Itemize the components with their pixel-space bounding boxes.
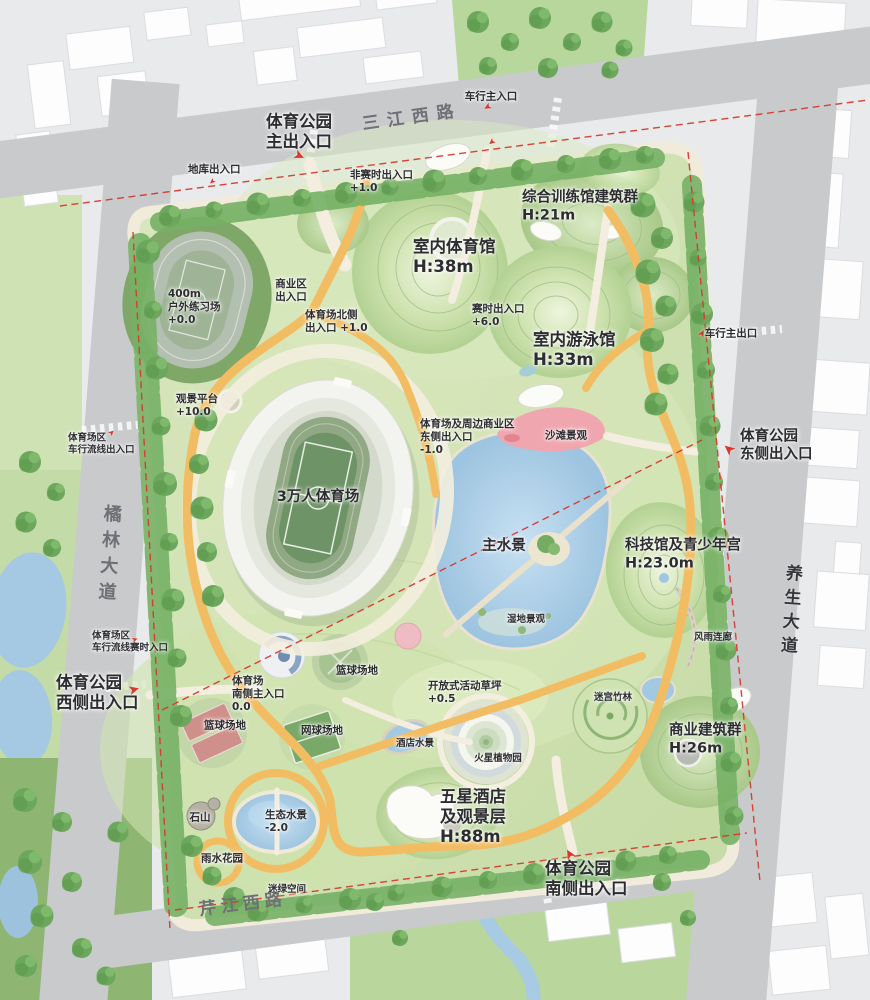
entrance-arrow-icon: ➤ — [127, 682, 142, 699]
map-label: 体育公园 主出入口 — [266, 112, 332, 152]
map-label: 体育场区 车行流线出入口 — [68, 432, 135, 455]
map-label: 商业建筑群 H:26m — [669, 722, 742, 757]
map-label: 体育公园 西侧出入口 — [56, 673, 139, 713]
map-label: 芹江西路 — [198, 889, 288, 920]
map-label: 酒店水景 — [396, 738, 434, 750]
entrance-arrow-icon: ➤ — [107, 428, 117, 438]
map-label: 三江西路 — [361, 101, 463, 135]
map-label: 迷宫竹林 — [594, 692, 632, 704]
map-label: 篮球场地 — [336, 665, 378, 678]
label-layer: 车行主入口体育公园 主出入口三江西路地库出入口非赛时出入口 +1.0综合训练馆建… — [0, 0, 870, 1000]
map-label: 体育场区 车行流线赛时入口 — [92, 630, 168, 653]
map-label: 风雨连廊 — [694, 632, 732, 644]
entrance-arrow-icon: ➤ — [130, 635, 139, 645]
map-label: 室内游泳馆 H:33m — [533, 330, 616, 370]
map-label: 体育场北侧 出入口 +1.0 — [305, 309, 368, 335]
map-label: 生态水景 -2.0 — [265, 809, 307, 835]
map-label: 体育场 南侧主入口 0.0 — [232, 675, 285, 713]
map-label: 观景平台 +10.0 — [176, 393, 218, 419]
entrance-arrow-icon: ➤ — [697, 328, 710, 340]
entrance-arrow-icon: ➤ — [481, 100, 493, 113]
entrance-arrow-icon: ➤ — [561, 845, 579, 862]
map-label: 主水景 — [482, 538, 526, 556]
map-label: 400m 户外练习场 +0.0 — [168, 288, 221, 326]
map-label: 迷绿空间 — [268, 884, 306, 896]
entrance-arrow-icon: ➤ — [719, 439, 738, 459]
map-label: 石山 — [190, 812, 211, 825]
map-label: 开放式活动草坪 +0.5 — [428, 680, 502, 706]
map-label: 体育公园 东侧出入口 — [740, 428, 813, 463]
entrance-arrow-icon: ➤ — [291, 147, 308, 165]
map-label: 沙滩景观 — [545, 430, 587, 443]
map-label: 赛时出入口 +6.0 — [472, 303, 525, 329]
map-label: 商业区 出入口 — [275, 278, 307, 304]
map-label: 综合训练馆建筑群 H:21m — [522, 189, 638, 224]
map-label: 雨水花园 — [201, 853, 243, 866]
map-label: 体育公园 南侧出入口 — [545, 859, 628, 899]
entrance-arrow-icon: ➤ — [485, 135, 497, 147]
map-label: 网球场地 — [301, 725, 343, 738]
map-label: 车行主入口 — [465, 91, 518, 104]
map-label: 室内体育馆 H:38m — [413, 237, 496, 277]
map-label: 五星酒店 及观景层 H:88m — [440, 787, 506, 847]
site-plan: 车行主入口体育公园 主出入口三江西路地库出入口非赛时出入口 +1.0综合训练馆建… — [0, 0, 870, 1000]
entrance-arrow-icon: ➤ — [207, 176, 217, 186]
map-label: 非赛时出入口 +1.0 — [350, 169, 413, 195]
map-label: 地库出入口 — [188, 164, 241, 177]
map-label: 湿地景观 — [507, 614, 545, 626]
map-label: 橘林大道 — [93, 503, 122, 608]
map-label: 火星植物园 — [474, 753, 522, 765]
map-label: 篮球场地 — [204, 720, 246, 733]
map-label: 3万人体育场 — [277, 489, 360, 507]
map-label: 车行主出口 — [705, 328, 758, 341]
map-label: 体育场及周边商业区 东侧出入口 -1.0 — [420, 418, 515, 456]
map-label: 养生大道 — [775, 563, 802, 660]
map-label: 科技馆及青少年宫 H:23.0m — [625, 537, 741, 572]
